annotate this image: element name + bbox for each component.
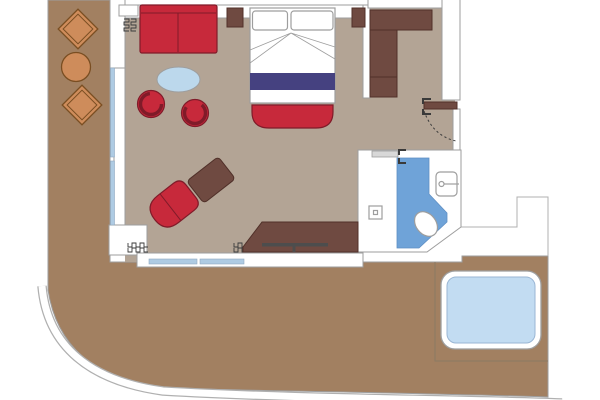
window-bottom-right bbox=[200, 259, 244, 264]
bed-pillow-left bbox=[253, 11, 288, 30]
wall-corridor-right bbox=[442, 0, 460, 100]
coffee-table-oval bbox=[157, 67, 200, 92]
nightstand-left bbox=[227, 8, 243, 27]
window-left-upper bbox=[111, 68, 115, 157]
whirlpool-water bbox=[447, 277, 535, 343]
tub-chair-1 bbox=[138, 91, 165, 118]
whirlpool-hot-tub bbox=[441, 271, 541, 349]
window-left-lower bbox=[111, 161, 115, 225]
nightstand-right bbox=[352, 8, 365, 27]
desk-console-rail bbox=[262, 243, 328, 247]
bathroom-sliding-door bbox=[372, 151, 398, 157]
window-bottom-left bbox=[149, 259, 197, 264]
structure-outline bbox=[461, 197, 548, 256]
floor-plan-svg bbox=[0, 0, 600, 400]
bed-runner bbox=[250, 73, 335, 90]
entrance-door bbox=[424, 102, 457, 109]
bed-pillow-right bbox=[291, 11, 333, 30]
wall-window-band-left bbox=[114, 68, 125, 225]
foot-bench bbox=[252, 105, 333, 128]
wall-right-below-door bbox=[453, 109, 460, 152]
suite-floor-plan bbox=[0, 0, 600, 400]
desk-console-leg bbox=[293, 247, 296, 253]
deck-table-round bbox=[62, 53, 91, 82]
wall-top-over-nook bbox=[368, 0, 446, 8]
desk-console bbox=[243, 222, 358, 252]
wall-pier-top-left bbox=[119, 5, 138, 16]
shower-drain bbox=[369, 206, 382, 219]
